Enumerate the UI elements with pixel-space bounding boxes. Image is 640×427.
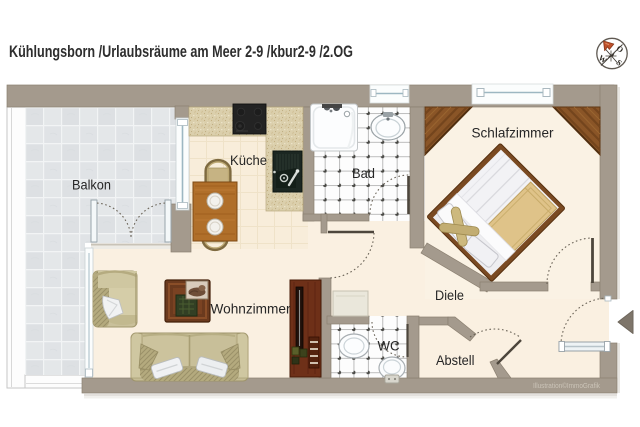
svg-text:Küche: Küche bbox=[230, 152, 267, 168]
svg-text:Diele: Diele bbox=[435, 287, 464, 303]
svg-text:Balkon: Balkon bbox=[72, 177, 111, 193]
svg-text:Kühlungsborn /Urlaubsräume am: Kühlungsborn /Urlaubsräume am Meer 2-9 /… bbox=[9, 43, 353, 61]
svg-text:Schlafzimmer: Schlafzimmer bbox=[472, 125, 554, 141]
svg-text:Abstell: Abstell bbox=[436, 352, 475, 368]
svg-text:Bad: Bad bbox=[352, 165, 375, 181]
svg-text:WC: WC bbox=[378, 338, 400, 354]
svg-text:Wohnzimmer: Wohnzimmer bbox=[211, 301, 291, 317]
svg-text:Illustration©ImmoGrafik: Illustration©ImmoGrafik bbox=[533, 382, 600, 390]
